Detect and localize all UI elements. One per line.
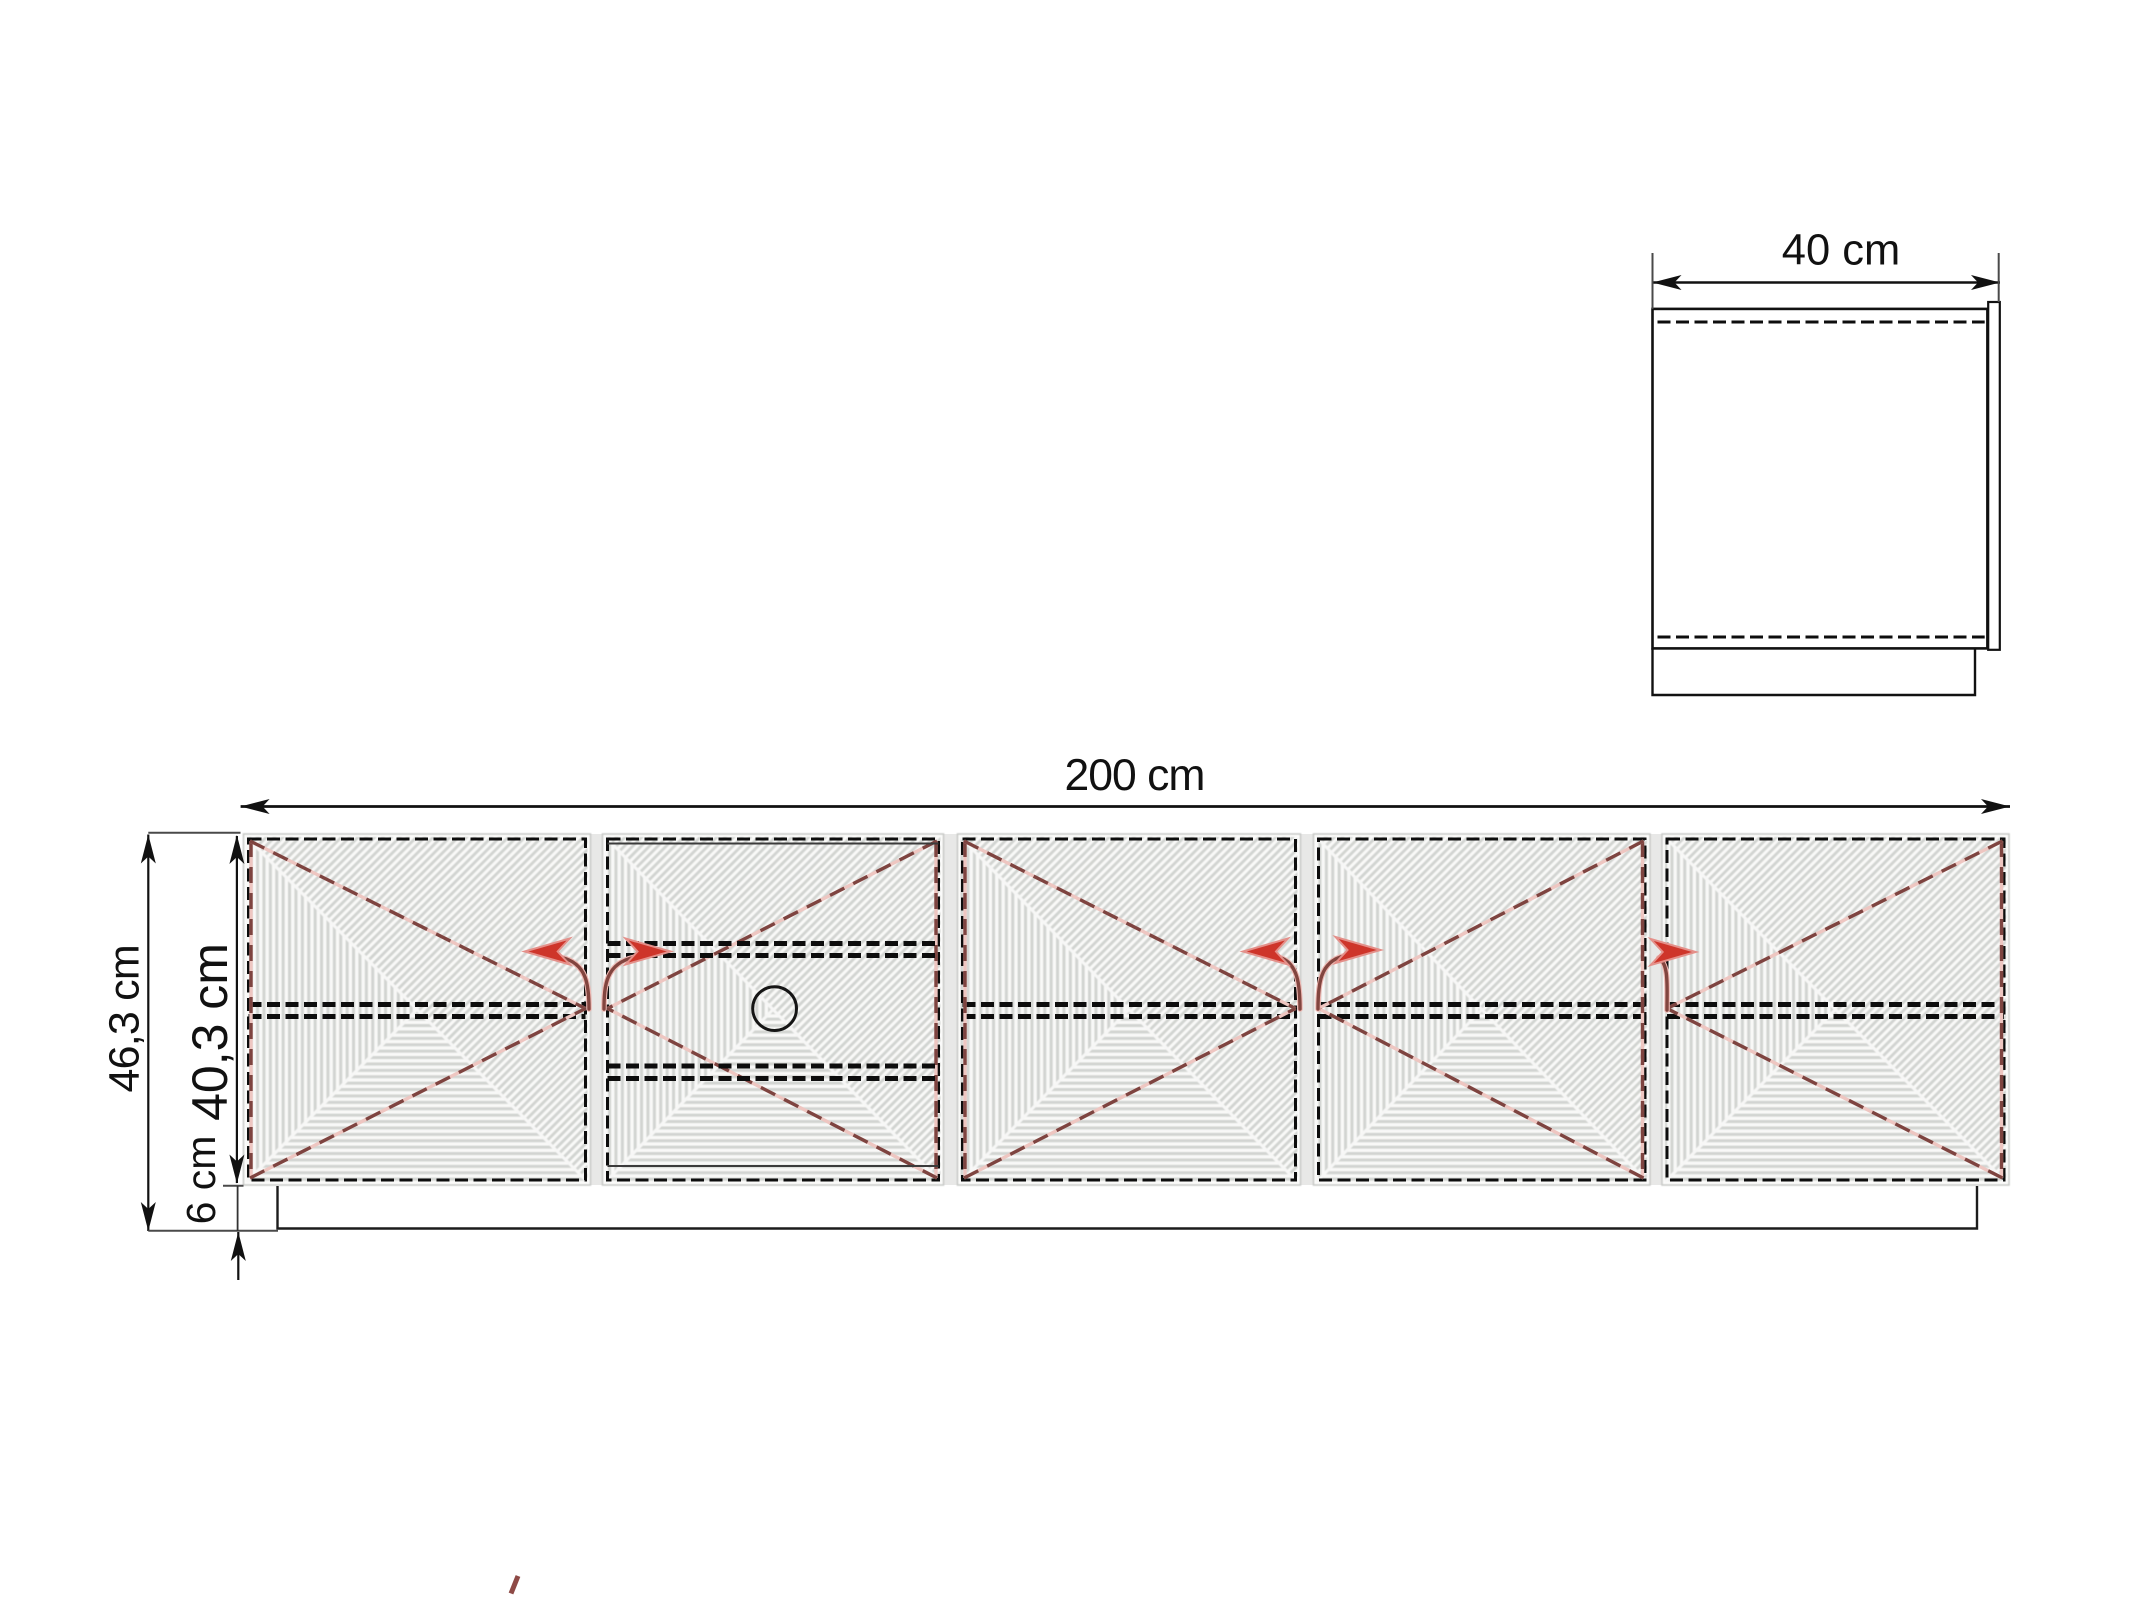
svg-text:40,3 cm: 40,3 cm	[182, 943, 238, 1121]
svg-text:40 cm: 40 cm	[1782, 227, 1900, 275]
svg-text:200 cm: 200 cm	[1065, 751, 1205, 800]
svg-text:46,3 cm: 46,3 cm	[101, 945, 149, 1092]
svg-text:6 cm: 6 cm	[178, 1136, 224, 1225]
